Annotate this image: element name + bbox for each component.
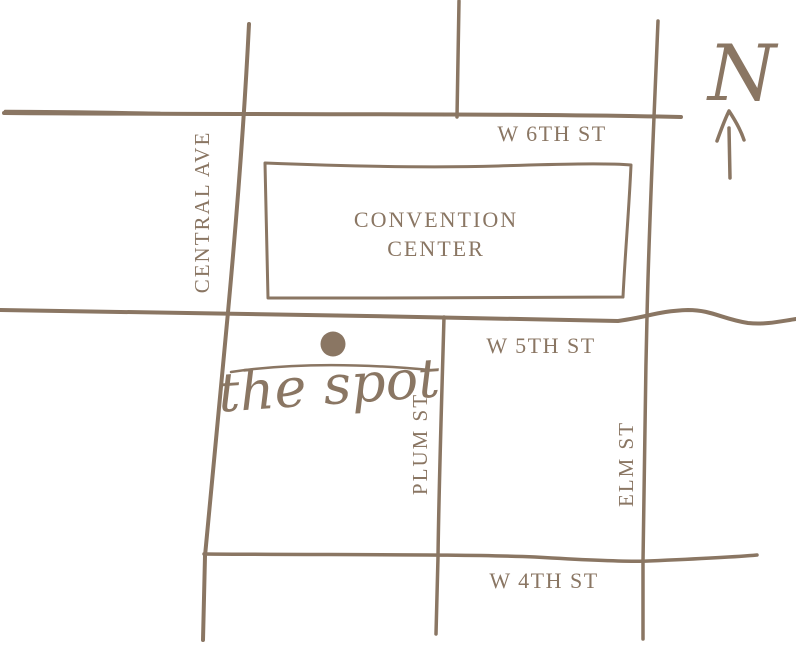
street-lines — [0, 1, 796, 640]
street-label-w4th: W 4TH ST — [489, 568, 598, 593]
w6th-street-line — [4, 113, 681, 117]
street-label-w6th: W 6TH ST — [497, 121, 606, 146]
street-label-central-ave: CENTRAL AVE — [190, 131, 214, 294]
venue-marker: the spot — [216, 332, 442, 425]
venue-map: CONVENTION CENTER W 6TH ST W 5TH ST W 4T… — [0, 0, 796, 646]
street-label-elm: ELM ST — [614, 421, 638, 507]
convention-center-label-line2: CENTER — [387, 236, 485, 261]
map-canvas: CONVENTION CENTER W 6TH ST W 5TH ST W 4T… — [0, 0, 796, 646]
compass-north-label: N — [706, 29, 779, 119]
w4th-street-line — [204, 554, 757, 561]
street-label-w5th: W 5TH ST — [486, 333, 595, 358]
w5th-street-line — [0, 310, 796, 324]
plum-street-north-line — [457, 1, 459, 117]
elm-street-line — [643, 21, 658, 639]
convention-center-block: CONVENTION CENTER — [265, 163, 631, 298]
central-ave-line — [203, 24, 249, 640]
north-arrow-shaft — [729, 128, 730, 178]
convention-center-label-line1: CONVENTION — [354, 207, 518, 232]
north-arrow-icon — [717, 111, 744, 178]
compass: N — [706, 29, 779, 178]
